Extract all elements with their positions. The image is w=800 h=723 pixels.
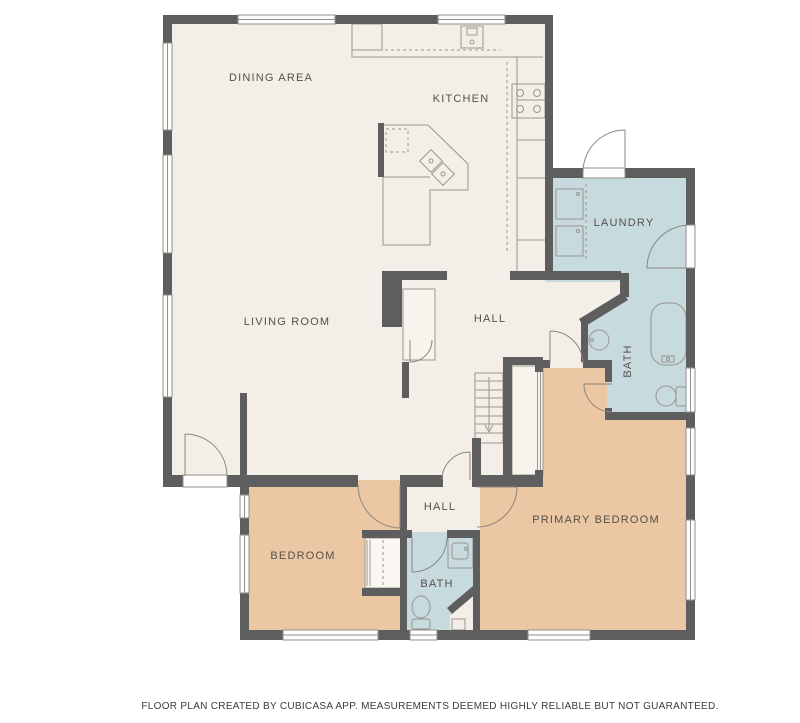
window bbox=[438, 15, 505, 24]
window bbox=[240, 535, 249, 593]
window bbox=[163, 295, 172, 397]
label-hall-upper: HALL bbox=[474, 313, 506, 325]
window bbox=[163, 155, 172, 253]
window bbox=[410, 630, 437, 640]
window bbox=[686, 520, 695, 600]
label-dining-area: DINING AREA bbox=[229, 72, 313, 84]
label-primary-bedroom: PRIMARY BEDROOM bbox=[532, 514, 660, 526]
laundry-side-door-sill bbox=[686, 225, 695, 268]
window bbox=[528, 630, 590, 640]
label-kitchen: KITCHEN bbox=[433, 93, 490, 105]
label-laundry: LAUNDRY bbox=[594, 217, 655, 229]
primary-closet bbox=[512, 366, 543, 475]
window bbox=[163, 43, 172, 130]
window bbox=[283, 630, 378, 640]
label-bedroom: BEDROOM bbox=[270, 550, 335, 562]
laundry-door-sill bbox=[583, 168, 625, 178]
window bbox=[686, 428, 695, 475]
label-bath-lower: BATH bbox=[420, 578, 453, 590]
label-bath-upper: BATH bbox=[622, 344, 634, 377]
window bbox=[238, 15, 335, 24]
window bbox=[686, 368, 695, 412]
floor-plan-page: DINING AREA KITCHEN LIVING ROOM HALL LAU… bbox=[0, 0, 800, 723]
label-living-room: LIVING ROOM bbox=[244, 316, 331, 328]
bedroom-closet bbox=[365, 538, 403, 588]
label-hall-lower: HALL bbox=[424, 501, 456, 513]
footer-disclaimer: FLOOR PLAN CREATED BY CUBICASA APP. MEAS… bbox=[141, 701, 718, 712]
window bbox=[240, 495, 249, 518]
floor-plan-canvas: DINING AREA KITCHEN LIVING ROOM HALL LAU… bbox=[0, 0, 800, 723]
entry-door-sill bbox=[183, 475, 227, 487]
laundry-exterior-door-swing-icon bbox=[583, 130, 625, 172]
